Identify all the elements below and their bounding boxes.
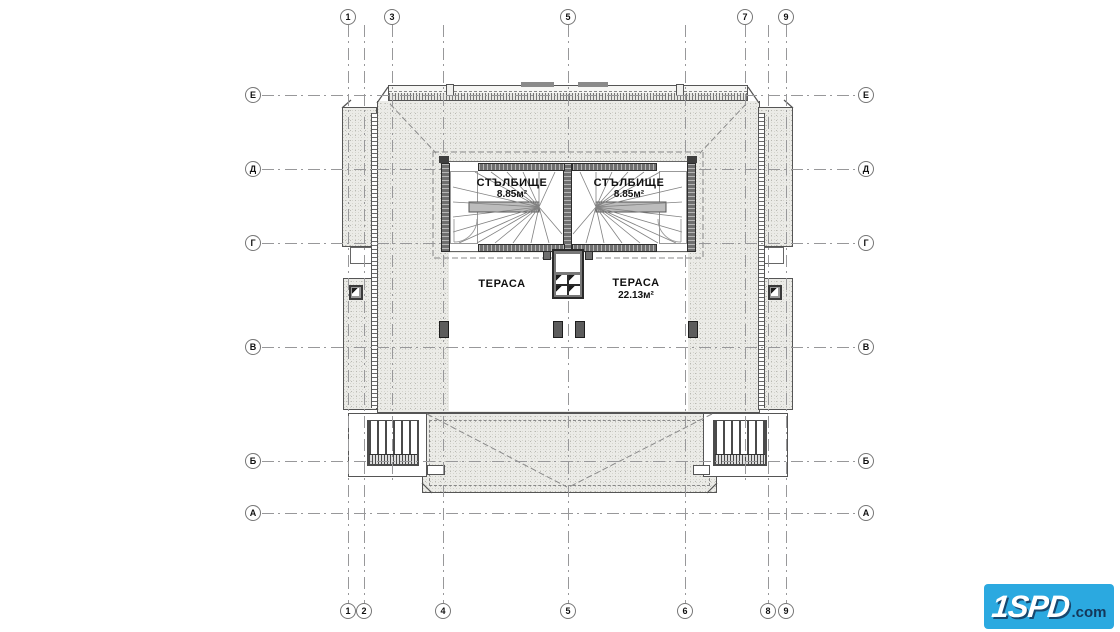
logo-suffix-text: .com	[1071, 604, 1106, 621]
grid-bubble-left-A: А	[245, 505, 261, 521]
floor-plan-canvas: СТЪЛБИЩЕ 8.85м² СТЪЛБИЩЕ 8.85м² ТЕРАСА Т…	[0, 0, 1120, 632]
grid-bubble-right-E: Е	[858, 87, 874, 103]
terrace-right-area: 22.13м²	[618, 290, 654, 301]
grid-bubble-right-V: В	[858, 339, 874, 355]
stair-right-label: СТЪЛБИЩЕ	[594, 177, 665, 189]
terrace-left-label: ТЕРАСА	[478, 278, 525, 290]
terrace-right-label: ТЕРАСА	[612, 277, 659, 289]
grid-bubble-right-G: Г	[858, 235, 874, 251]
grid-bubble-bottom-4: 4	[435, 603, 451, 619]
grid-bubble-bottom-6: 6	[677, 603, 693, 619]
grid-bubble-right-B: Б	[858, 453, 874, 469]
grid-bubble-right-D: Д	[858, 161, 874, 177]
stair-left-label: СТЪЛБИЩЕ	[477, 177, 548, 189]
stair-left-area: 8.85м²	[497, 189, 527, 200]
grid-bubble-top-5: 5	[560, 9, 576, 25]
grid-bubble-top-3: 3	[384, 9, 400, 25]
logo-brand-text: 1SPD	[990, 591, 1070, 622]
grid-bubble-bottom-8: 8	[760, 603, 776, 619]
grid-bubble-top-1: 1	[340, 9, 356, 25]
watermark-logo: 1SPD .com	[984, 584, 1114, 629]
grid-bubble-top-7: 7	[737, 9, 753, 25]
grid-bubble-left-V: В	[245, 339, 261, 355]
grid-bubble-top-9: 9	[778, 9, 794, 25]
grid-bubble-bottom-2: 2	[356, 603, 372, 619]
stair-right-area: 8.85м²	[614, 189, 644, 200]
grid-bubble-left-E: Е	[245, 87, 261, 103]
grid-bubble-bottom-5: 5	[560, 603, 576, 619]
stair-treads-layer	[0, 0, 1120, 632]
grid-bubble-left-B: Б	[245, 453, 261, 469]
grid-bubble-right-A: А	[858, 505, 874, 521]
grid-bubble-left-G: Г	[245, 235, 261, 251]
grid-bubble-bottom-1: 1	[340, 603, 356, 619]
grid-bubble-left-D: Д	[245, 161, 261, 177]
grid-bubble-bottom-9: 9	[778, 603, 794, 619]
